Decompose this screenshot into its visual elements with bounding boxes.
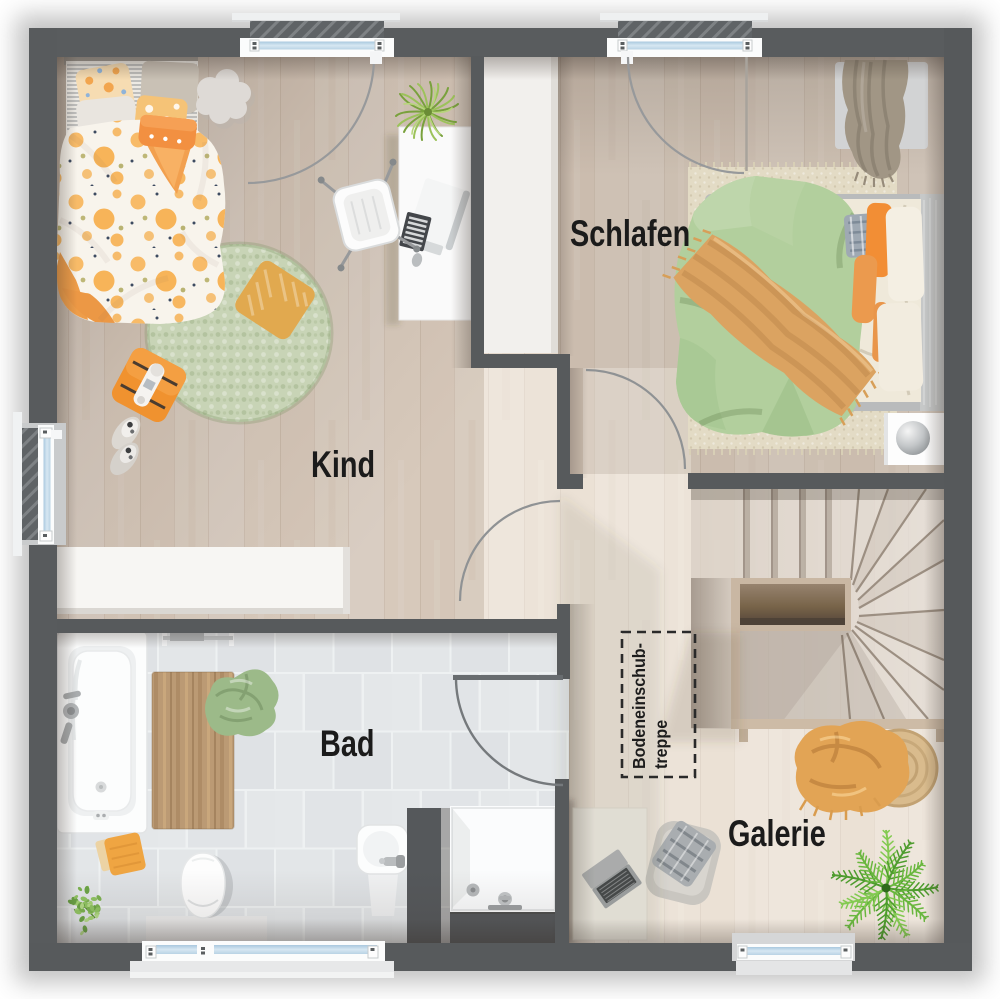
svg-text:Kind: Kind (311, 445, 375, 486)
svg-text:treppe: treppe (651, 720, 671, 769)
svg-text:Galerie: Galerie (728, 814, 826, 855)
svg-text:Schlafen: Schlafen (570, 214, 690, 255)
svg-text:Bodeneinschub-: Bodeneinschub- (629, 643, 649, 769)
svg-text:Bad: Bad (320, 724, 375, 765)
